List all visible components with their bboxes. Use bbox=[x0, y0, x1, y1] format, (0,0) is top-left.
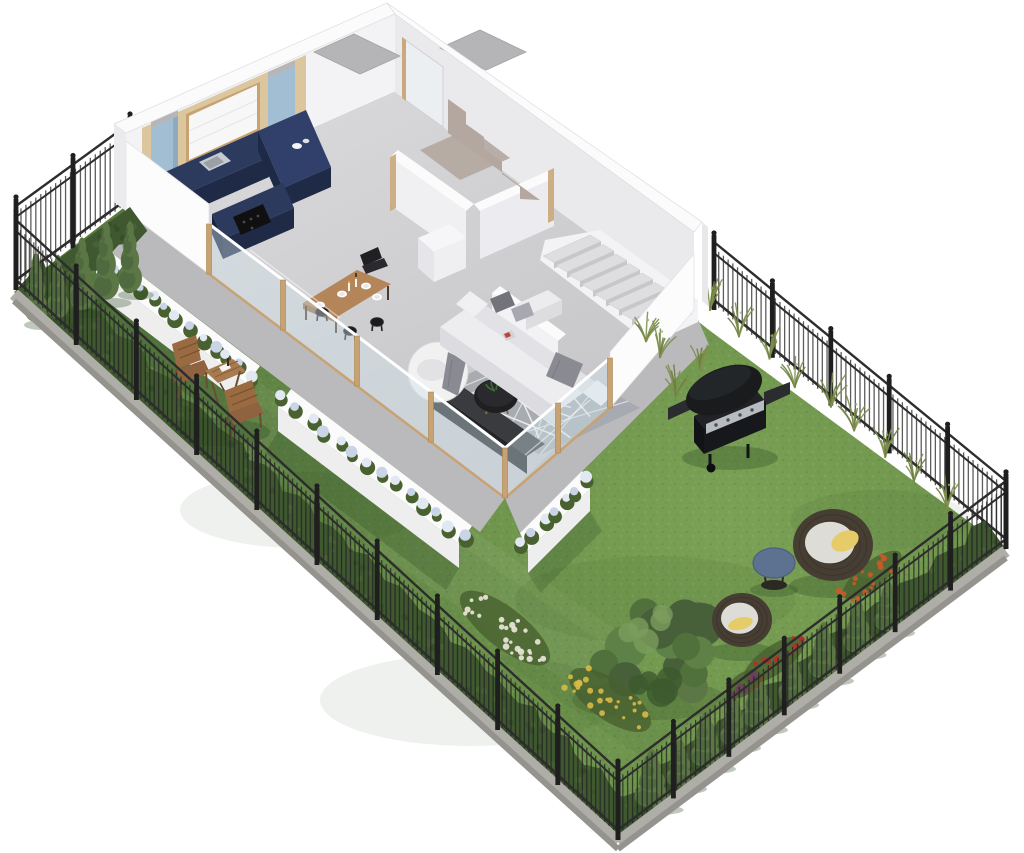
floorplan-render: Isometric 3D cutaway floor plan of a gro… bbox=[0, 0, 1024, 853]
render-canvas: Isometric 3D cutaway floor plan of a gro… bbox=[0, 0, 1024, 853]
